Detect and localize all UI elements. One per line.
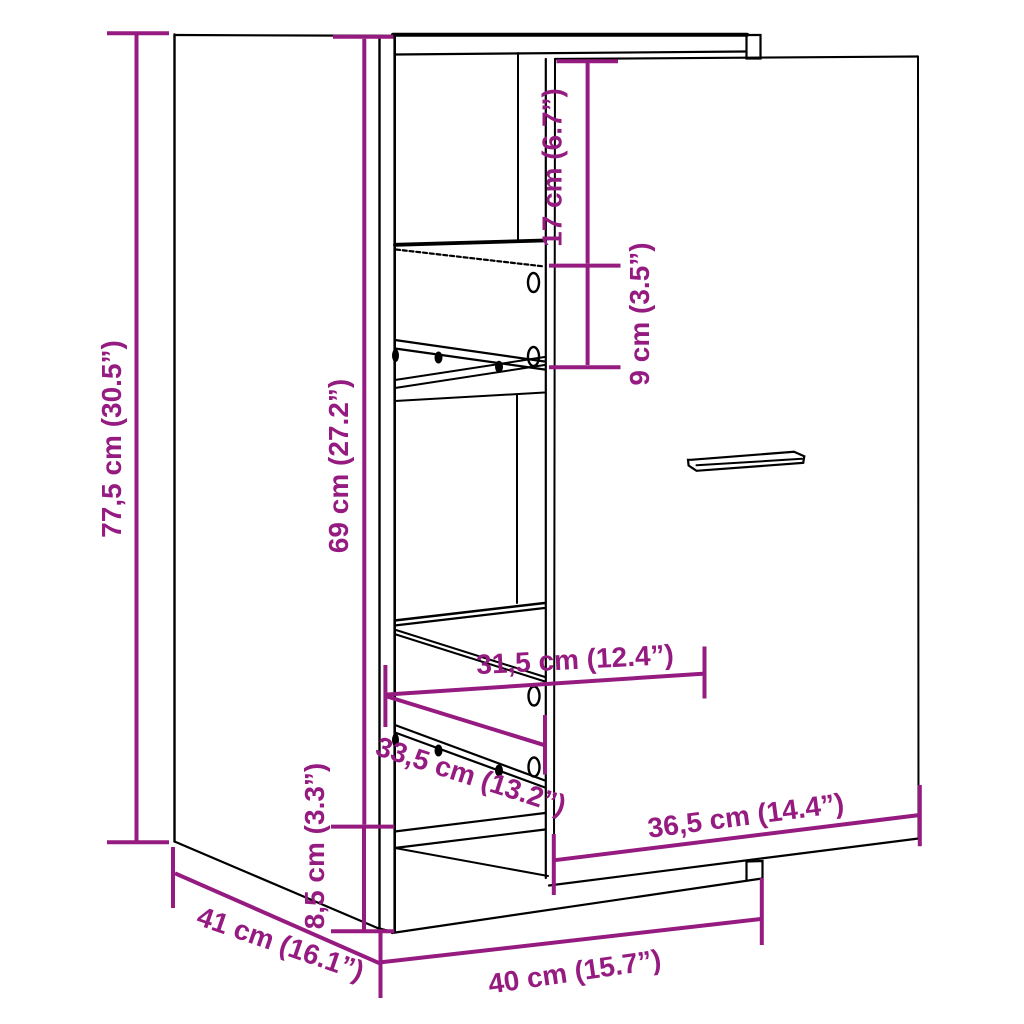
svg-text:9 cm (3.5”): 9 cm (3.5”) — [624, 242, 655, 385]
svg-text:77,5 cm (30.5”): 77,5 cm (30.5”) — [96, 340, 127, 538]
svg-text:17 cm (6.7”): 17 cm (6.7”) — [537, 88, 568, 247]
svg-text:69 cm (27.2”): 69 cm (27.2”) — [323, 379, 354, 553]
svg-text:8,5 cm (3.3”): 8,5 cm (3.3”) — [299, 763, 330, 930]
